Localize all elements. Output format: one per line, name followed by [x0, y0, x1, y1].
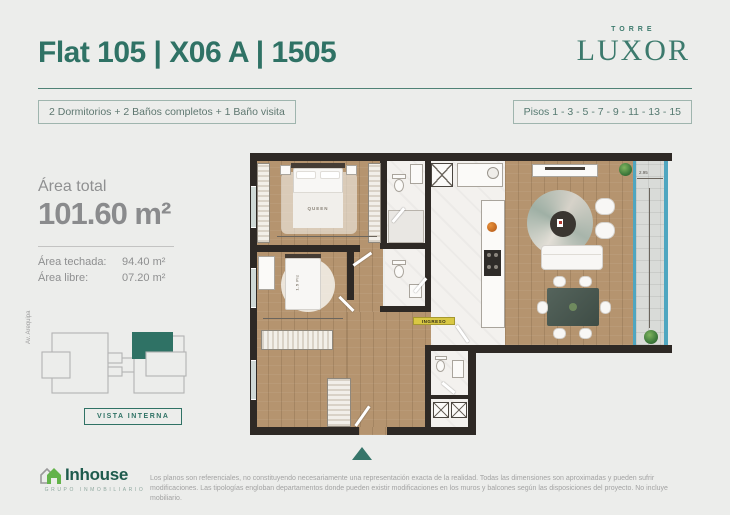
- dim-line-master: [277, 236, 377, 237]
- area-techada-value: 94.40 m²: [122, 256, 165, 268]
- dining-chair-1: [553, 276, 566, 287]
- header-divider: [38, 88, 692, 89]
- pillow-left: [296, 171, 316, 179]
- balcony-dim-label: 2.95: [639, 170, 648, 175]
- burner-1: [487, 253, 491, 257]
- wall-guestbath-left: [425, 345, 431, 429]
- floors-badge: Pisos 1 - 3 - 5 - 7 - 9 - 11 - 13 - 15: [513, 100, 692, 124]
- plant-balcony: [644, 330, 658, 344]
- bath2-toilet: [394, 265, 404, 278]
- master-wardrobe-left: [257, 163, 270, 243]
- dining-chair-3: [553, 328, 566, 339]
- queen-bed-label: QUEEN: [293, 206, 343, 211]
- inhouse-logo-text: Inhouse: [65, 465, 128, 485]
- window-bedroom2: [251, 268, 256, 308]
- washing-machine: [433, 402, 449, 418]
- area-techada-label: Área techada:: [38, 256, 122, 268]
- disclaimer-text: Los planos son referenciales, no constit…: [150, 474, 698, 504]
- floor-plan: QUEEN 1.5 Plz 2.95: [247, 148, 675, 443]
- dining-chair-5: [537, 301, 548, 314]
- entrance-marker-triangle: [352, 447, 372, 460]
- armchair-1: [595, 198, 615, 215]
- balcony-floor: [636, 161, 664, 345]
- dining-chair-6: [600, 301, 611, 314]
- sofa-cushion-line: [543, 254, 601, 255]
- burner-2: [494, 253, 498, 257]
- wall-bedroom2-right: [347, 252, 354, 300]
- nightstand-right: [346, 165, 357, 175]
- inhouse-logo: Inhouse GRUPO INMOBILIARIO: [40, 465, 150, 493]
- wall-laundry-divider: [431, 395, 468, 399]
- dining-chair-4: [579, 328, 592, 339]
- bath1-toilet: [394, 179, 404, 192]
- inhouse-logo-subtitle: GRUPO INMOBILIARIO: [40, 487, 150, 493]
- area-divider: [38, 246, 174, 247]
- wall-living-bottom: [468, 345, 672, 353]
- duct-shaft: [431, 163, 453, 187]
- coffee-table-accent: [559, 221, 562, 224]
- window-lower: [251, 360, 256, 400]
- area-techada-row: Área techada: 94.40 m²: [38, 256, 208, 268]
- area-libre-label: Área libre:: [38, 272, 122, 284]
- wall-guestbath-top: [425, 345, 476, 351]
- hall-closet: [327, 378, 351, 427]
- balcony-glass-outer: [664, 161, 668, 345]
- tv: [545, 167, 585, 170]
- guest-sink: [452, 360, 464, 378]
- nightstand-left: [280, 165, 291, 175]
- bedroom2-shelf: [258, 256, 275, 290]
- dim-line-balcony-v: [649, 188, 650, 328]
- coffee-table: [550, 211, 576, 237]
- street-label: Av. Arequipa: [26, 284, 32, 344]
- wall-bath-divider: [380, 243, 431, 249]
- bath1-vanity: [410, 164, 423, 184]
- vista-interna-badge: VISTA INTERNA: [84, 408, 182, 425]
- wall-bath2-bottom: [380, 306, 431, 312]
- washer-icon: [487, 167, 499, 179]
- bathroom2-floor: [385, 249, 427, 309]
- fruit-bowl: [487, 222, 497, 232]
- dryer: [451, 402, 467, 418]
- master-wardrobe-right: [368, 163, 381, 243]
- sofa: [541, 245, 603, 270]
- entrance-opening: [359, 427, 387, 435]
- area-libre-row: Área libre: 07.20 m²: [38, 272, 208, 284]
- house-icon: [40, 466, 62, 485]
- balcony-glass-inner: [633, 161, 636, 345]
- bed2-label: 1.5 Plz: [294, 275, 299, 291]
- unit-features-badge: 2 Dormitorios + 2 Baños completos + 1 Ba…: [38, 100, 296, 124]
- wall-master-bath: [380, 161, 387, 247]
- bed2: [285, 258, 321, 310]
- burner-3: [487, 265, 491, 269]
- bath1-shower: [388, 210, 424, 243]
- page-title: Flat 105 | X06 A | 1505: [38, 36, 336, 70]
- dining-centerpiece: [569, 303, 577, 311]
- keyplan-diagram: [38, 328, 188, 400]
- burner-4: [494, 265, 498, 269]
- wall-top: [250, 153, 672, 161]
- armchair-2: [595, 222, 615, 239]
- area-total-value: 101.60 m²: [38, 196, 170, 232]
- plant-living: [619, 163, 632, 176]
- bedroom2-wardrobe: [261, 330, 333, 350]
- entrance-tag: INGRESO: [413, 317, 455, 325]
- wall-lower-right: [468, 345, 476, 435]
- area-total-label: Área total: [38, 178, 106, 196]
- guest-toilet: [436, 360, 445, 372]
- dim-line-bedroom2: [263, 318, 343, 319]
- torre-luxor-logo: TORRE LUXOR: [577, 26, 690, 68]
- dim-line-balcony: [637, 178, 663, 179]
- dining-chair-2: [579, 276, 592, 287]
- pillow-right: [320, 171, 340, 179]
- brand-top-label: TORRE: [577, 26, 690, 33]
- wall-master-bottom: [250, 245, 360, 252]
- brand-name-label: LUXOR: [577, 34, 690, 68]
- tv-console: [532, 164, 598, 177]
- window-master: [251, 186, 256, 228]
- area-libre-value: 07.20 m²: [122, 272, 165, 284]
